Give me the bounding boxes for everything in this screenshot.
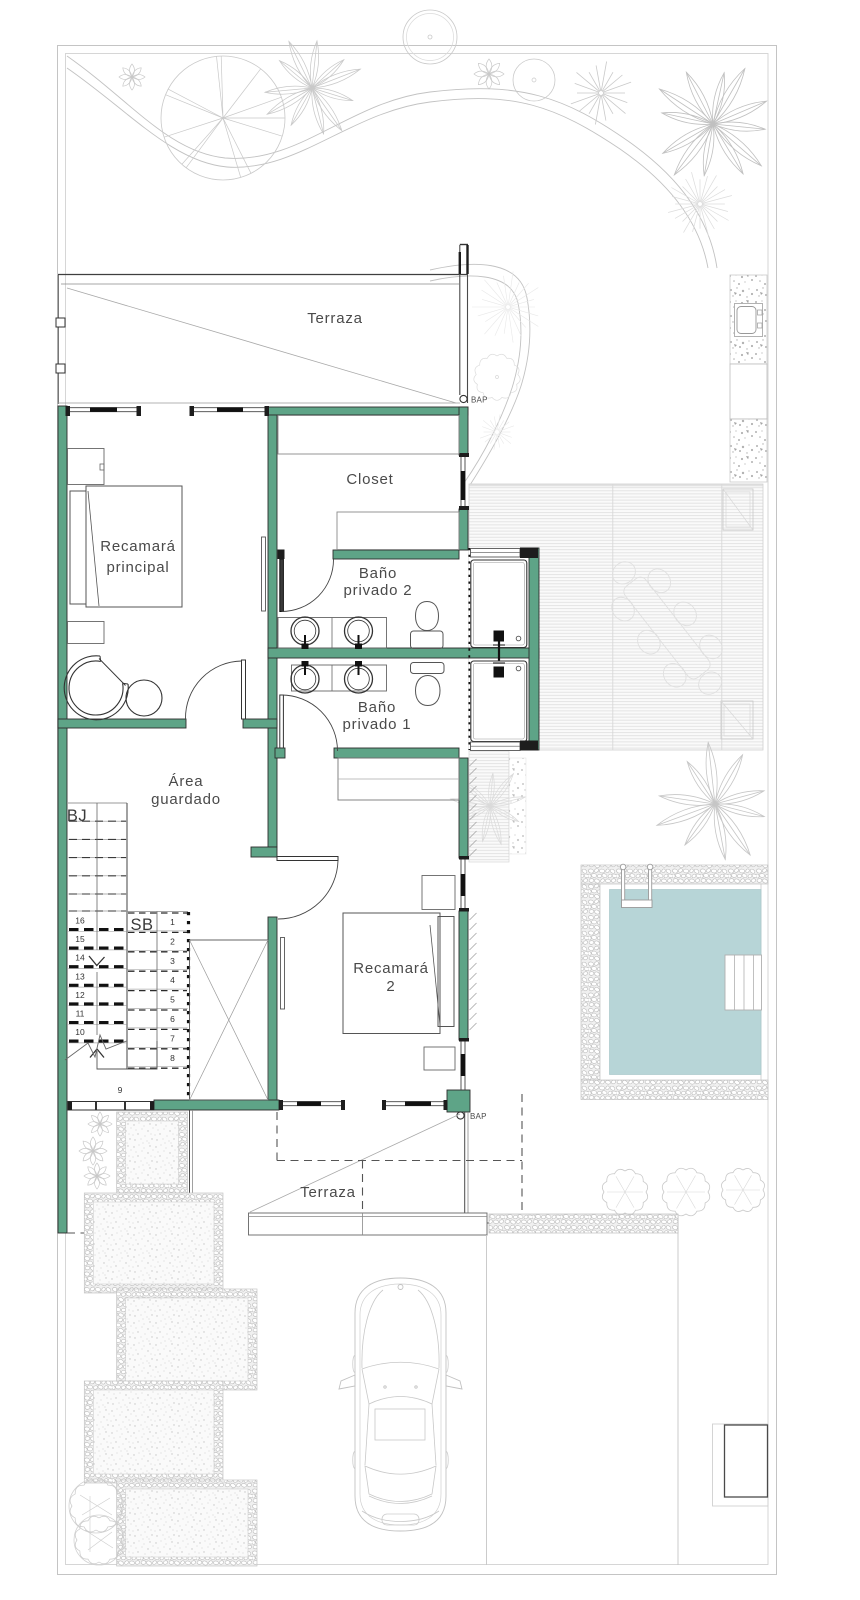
svg-text:7: 7	[170, 1033, 175, 1043]
svg-text:privado 2: privado 2	[344, 582, 413, 599]
svg-text:BAP: BAP	[471, 396, 488, 405]
svg-text:Recamará: Recamará	[100, 538, 176, 555]
svg-text:Recamará: Recamará	[353, 960, 429, 977]
svg-text:9: 9	[118, 1085, 123, 1095]
svg-text:3: 3	[170, 956, 175, 966]
svg-text:16: 16	[75, 916, 85, 926]
svg-text:Baño: Baño	[358, 699, 396, 716]
svg-text:Closet: Closet	[346, 471, 393, 488]
svg-text:principal: principal	[106, 559, 169, 576]
svg-text:privado 1: privado 1	[343, 716, 412, 733]
svg-text:8: 8	[170, 1053, 175, 1063]
svg-text:BJ: BJ	[67, 807, 87, 825]
svg-text:2: 2	[170, 936, 175, 946]
svg-text:Terraza: Terraza	[307, 310, 363, 327]
svg-text:5: 5	[170, 995, 175, 1005]
svg-text:4: 4	[170, 975, 175, 985]
svg-text:guardado: guardado	[151, 791, 221, 808]
svg-text:Área: Área	[169, 773, 204, 790]
svg-text:Baño: Baño	[359, 565, 397, 582]
svg-text:Terraza: Terraza	[300, 1184, 356, 1201]
svg-text:SB: SB	[130, 916, 153, 934]
svg-text:13: 13	[75, 971, 85, 981]
svg-text:15: 15	[75, 934, 85, 944]
svg-text:1: 1	[170, 917, 175, 927]
svg-text:14: 14	[75, 953, 85, 963]
svg-text:BAP: BAP	[470, 1112, 487, 1121]
svg-text:6: 6	[170, 1014, 175, 1024]
svg-text:10: 10	[75, 1027, 85, 1037]
svg-text:2: 2	[386, 978, 395, 995]
svg-text:12: 12	[75, 990, 85, 1000]
svg-text:11: 11	[76, 1009, 85, 1019]
